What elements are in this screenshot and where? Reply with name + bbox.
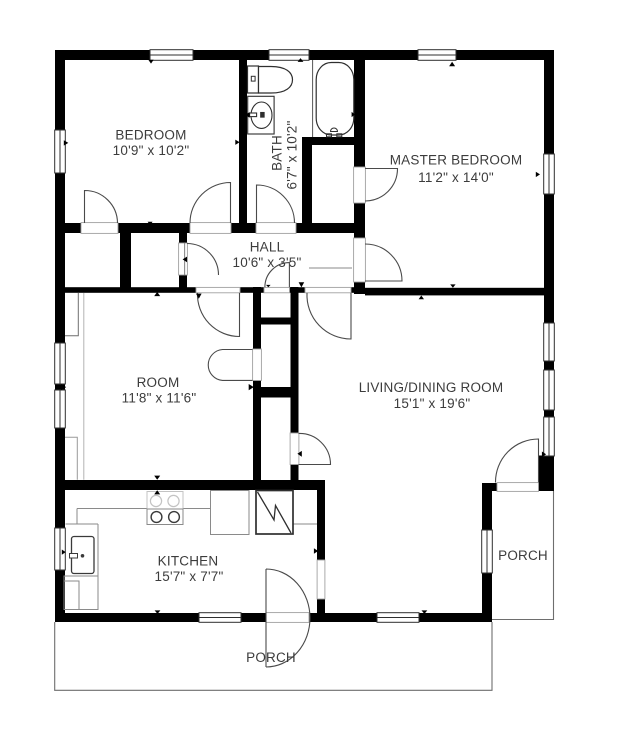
- svg-text:10'6" x 3'5": 10'6" x 3'5": [233, 255, 302, 270]
- svg-text:LIVING/DINING ROOM: LIVING/DINING ROOM: [359, 380, 504, 395]
- svg-text:MASTER BEDROOM: MASTER BEDROOM: [390, 153, 523, 168]
- svg-text:PORCH: PORCH: [498, 548, 548, 563]
- svg-text:6'7" x 10'2": 6'7" x 10'2": [285, 121, 300, 190]
- svg-text:BATH: BATH: [270, 135, 285, 171]
- svg-text:ROOM: ROOM: [137, 375, 180, 390]
- svg-text:11'2" x 14'0": 11'2" x 14'0": [418, 170, 494, 185]
- svg-text:15'7" x 7'7": 15'7" x 7'7": [155, 569, 224, 584]
- svg-text:KITCHEN: KITCHEN: [158, 554, 219, 569]
- svg-text:PORCH: PORCH: [246, 650, 296, 665]
- svg-text:15'1" x 19'6": 15'1" x 19'6": [394, 396, 471, 411]
- svg-text:HALL: HALL: [250, 240, 285, 255]
- svg-text:BEDROOM: BEDROOM: [115, 128, 186, 143]
- svg-text:11'8" x 11'6": 11'8" x 11'6": [122, 391, 197, 406]
- svg-text:10'9" x 10'2": 10'9" x 10'2": [113, 143, 190, 158]
